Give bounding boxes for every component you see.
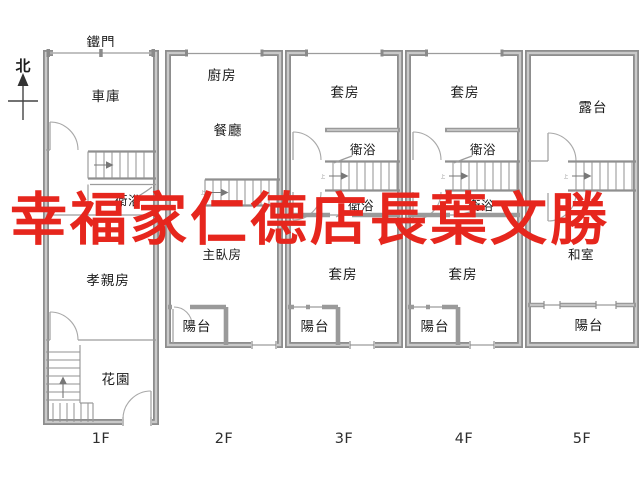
- terrace-door-arc-5f: [548, 133, 576, 161]
- balcony-5f: [528, 301, 636, 309]
- compass-cross: [8, 84, 38, 120]
- room-label-terrace: 露台: [579, 100, 608, 116]
- door-opening-2f: [251, 340, 277, 350]
- floor-label-3f: 3F: [335, 431, 354, 447]
- parents-room-door-arc: [46, 312, 156, 340]
- door-opening-4f: [469, 340, 495, 350]
- room-label-balcony-4f: 陽台: [421, 319, 450, 335]
- room-label-suite-upper-4f: 套房: [451, 85, 480, 101]
- stairs-up-label-5f: 上: [564, 173, 569, 180]
- door-opening-3f: [349, 340, 375, 350]
- floor-label-2f: 2F: [215, 431, 234, 447]
- floor-label-1f: 1F: [92, 431, 111, 447]
- floorplan-screenshot: 北 鐵門: [0, 0, 640, 480]
- room-label-suite-lower-3f: 套房: [329, 267, 358, 283]
- room-label-parents-room: 孝親房: [86, 273, 130, 289]
- room-label-balcony-2f: 陽台: [183, 319, 212, 335]
- room-label-garden: 花園: [102, 372, 131, 388]
- watermark: 幸福家仁德店長葉文勝: [10, 192, 610, 249]
- garden-door-arc: [122, 391, 152, 427]
- room-label-bathroom-upper-3f: 衛浴: [350, 142, 376, 157]
- stairs-1f: [88, 152, 156, 185]
- stairs-up-label-3f: 上: [321, 173, 326, 180]
- room-label-suite-lower-4f: 套房: [449, 267, 478, 283]
- north-compass: 北: [8, 57, 38, 120]
- floor-label-4f: 4F: [455, 431, 474, 447]
- garage-door-arc: [46, 122, 78, 150]
- suite-door-arc-upper-3f: [293, 132, 321, 160]
- suite-door-arc-upper-4f: [413, 132, 441, 160]
- room-label-balcony-5f: 陽台: [575, 318, 604, 334]
- floor-label-5f: 5F: [573, 431, 592, 447]
- room-label-garage: 車庫: [92, 89, 121, 105]
- garden-stairs-1f: [46, 345, 93, 422]
- room-label-suite-upper-3f: 套房: [331, 85, 360, 101]
- room-label-bathroom-upper-4f: 衛浴: [470, 142, 496, 157]
- north-label: 北: [15, 57, 30, 75]
- room-label-balcony-3f: 陽台: [301, 319, 330, 335]
- room-label-dining: 餐廳: [214, 122, 243, 139]
- room-label-kitchen: 廚房: [208, 67, 237, 84]
- stairs-up-label-4f: 上: [441, 173, 446, 180]
